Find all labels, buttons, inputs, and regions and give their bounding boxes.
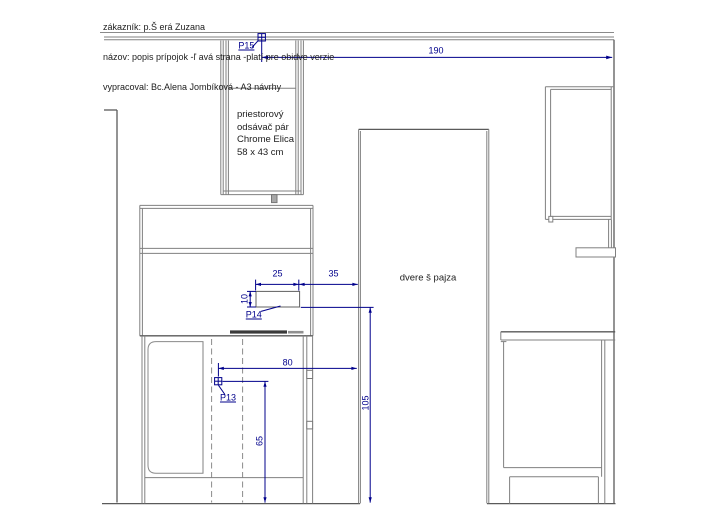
right-wall-cabinet — [545, 87, 613, 248]
right-shelf — [576, 248, 616, 257]
outlet-p14-rect — [256, 291, 300, 311]
left-tall-unit — [140, 205, 313, 335]
dim-label-190: 190 — [428, 46, 443, 55]
hood-stub — [272, 195, 278, 203]
hinge-mark — [307, 421, 313, 429]
cabinet-foot — [549, 216, 553, 222]
counter-gray-mark — [288, 331, 304, 334]
dim-label-35: 35 — [328, 269, 338, 278]
dim-label-10: 10 — [240, 294, 249, 304]
right-base-cabinet — [501, 332, 615, 504]
dim-label-65: 65 — [255, 436, 264, 446]
drawing-name-line: názov: popis prípojok -ľ avá strana -pla… — [103, 52, 334, 62]
point-label-p15: P15 — [238, 42, 254, 51]
pantry-door-label: dvere š pajza — [400, 273, 457, 284]
dim-label-80: 80 — [283, 358, 293, 367]
hood-annotation: priestorový odsávač pár Chrome Elica 58 … — [237, 109, 294, 159]
hood-annotation-line: priestorový — [237, 109, 294, 122]
title-block: zákazník: p.Š erá Zuzana názov: popis pr… — [103, 2, 334, 112]
customer-line: zákazník: p.Š erá Zuzana — [103, 22, 334, 32]
hood-annotation-line: 58 x 43 cm — [237, 147, 294, 160]
hood-annotation-line: odsávač pár — [237, 122, 294, 135]
pantry-door — [359, 129, 489, 503]
cad-drawing: zákazník: p.Š erá Zuzana názov: popis pr… — [0, 0, 720, 513]
point-label-p13: P13 — [220, 394, 236, 403]
hood-annotation-line: Chrome Elica — [237, 134, 294, 147]
point-label-p14: P14 — [246, 311, 262, 320]
dimension-25-35 — [256, 280, 358, 291]
hinge-mark — [307, 370, 313, 378]
dim-label-105: 105 — [362, 395, 371, 410]
author-line: vypracoval: Bc.Alena Jombíková - A3 návr… — [103, 82, 334, 92]
dim-label-25: 25 — [272, 269, 282, 278]
counter-dark-mark — [230, 330, 287, 333]
